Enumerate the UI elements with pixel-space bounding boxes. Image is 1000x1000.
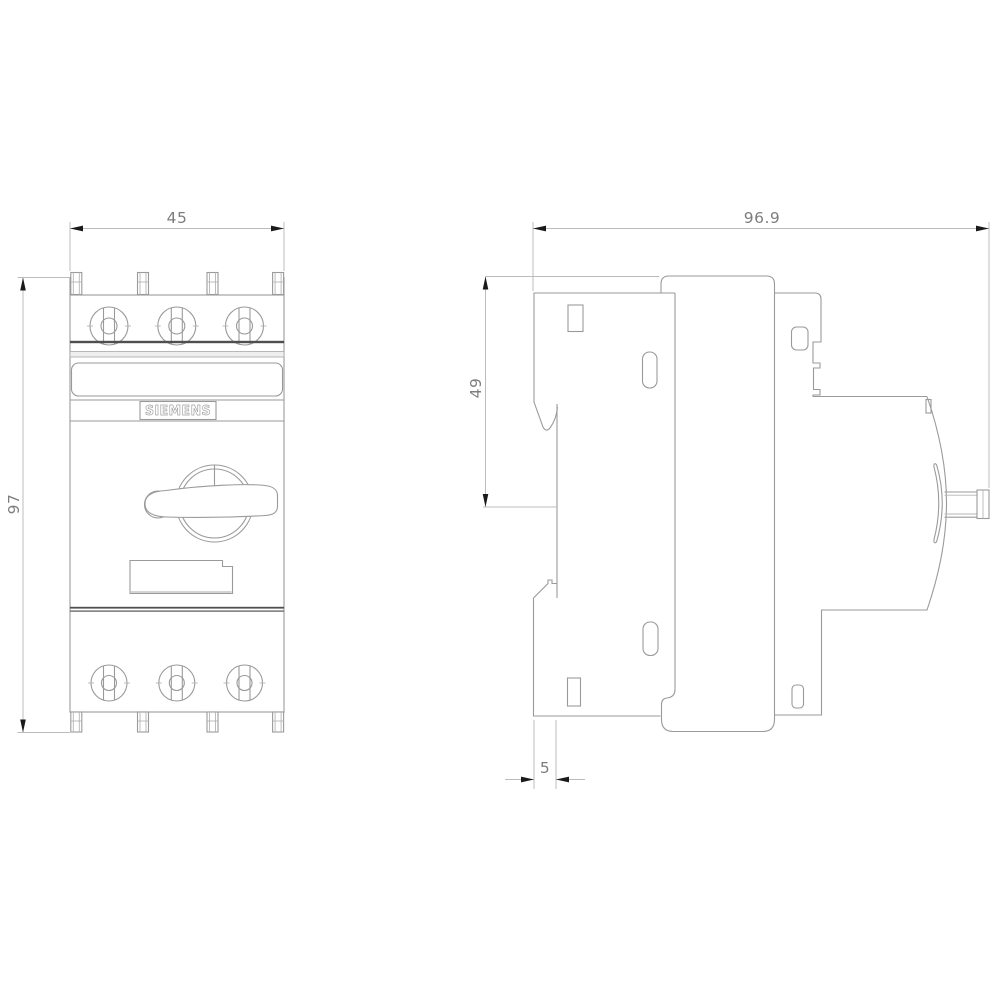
tab <box>71 273 82 295</box>
front-separator-bottom-1 <box>70 607 284 609</box>
tab <box>207 712 218 732</box>
dim-label-49: 49 <box>467 378 485 399</box>
tab <box>138 273 149 295</box>
vent-slot <box>643 622 658 656</box>
front-separator-bottom-2 <box>70 610 284 611</box>
dim-label-5: 5 <box>540 759 550 777</box>
dim-rail-offset: 5 <box>505 720 585 789</box>
dim-front-height: 97 <box>5 278 70 733</box>
drawing-svg: SIEMENS <box>0 0 1000 1000</box>
dim-label-97: 97 <box>5 494 23 515</box>
rear-top-left <box>534 293 675 402</box>
front-top-tabs <box>71 273 284 295</box>
din-claw-top <box>534 402 558 430</box>
vent-slot <box>792 327 809 350</box>
dim-side-depth: 96.9 <box>533 209 989 488</box>
front-label-strip <box>72 363 283 396</box>
side-rear-block <box>534 293 676 716</box>
tab <box>207 273 218 295</box>
vent-slot <box>568 305 583 332</box>
front-bulge <box>775 397 947 716</box>
front-view: SIEMENS <box>70 273 284 733</box>
din-claw-bottom <box>534 580 558 598</box>
vent-slot <box>568 678 581 706</box>
dim-front-width: 45 <box>70 209 284 271</box>
dim-side-upper-height: 49 <box>467 277 659 508</box>
dimension-drawing: SIEMENS <box>0 0 1000 1000</box>
vent-slot <box>643 352 658 388</box>
knob-lens <box>934 464 942 543</box>
setting-window <box>130 561 233 594</box>
tab <box>273 273 284 295</box>
side-view <box>534 276 990 732</box>
front-trim-band <box>70 352 284 358</box>
side-front-block <box>775 293 947 715</box>
front-profile-upper <box>775 293 928 397</box>
handle-side-profile <box>934 464 989 543</box>
dim-label-96-9: 96.9 <box>744 209 781 227</box>
tab <box>138 712 149 732</box>
rear-bottom-left <box>534 598 661 716</box>
dim-label-45: 45 <box>167 209 188 227</box>
side-center-section <box>661 276 775 732</box>
tab <box>71 712 82 732</box>
tab <box>273 712 284 732</box>
vent-slot <box>792 685 804 708</box>
handle-shaft <box>945 492 978 517</box>
siemens-logo: SIEMENS <box>145 403 211 419</box>
front-bottom-tabs <box>71 712 284 732</box>
front-separator-top <box>70 341 284 343</box>
